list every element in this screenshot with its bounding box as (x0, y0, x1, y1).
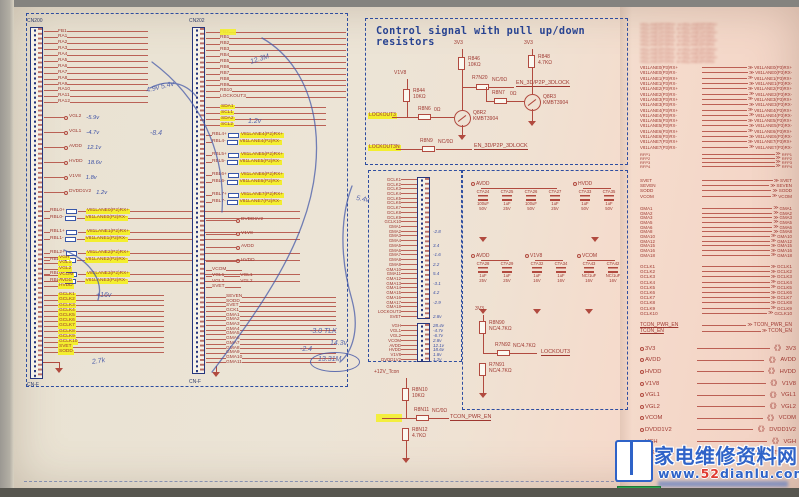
wire (76, 326, 164, 327)
wire (396, 149, 422, 150)
wire (76, 311, 164, 312)
lane-dest-label: V81LANE1(P2)RX- (85, 237, 128, 242)
wire (206, 97, 220, 98)
wire (67, 43, 148, 44)
lane-offpage-list: V81LANE0(P3)RX+ ≫ V81LANE0(P3)RX+ V81LAN… (640, 65, 792, 150)
wire (234, 113, 326, 114)
net-node-icon (236, 259, 240, 263)
net-row: SVET (206, 285, 346, 291)
handwritten-voltage: 12.1v (87, 145, 101, 151)
capacitor: CTA32 1uF 16V (525, 261, 549, 283)
wire (702, 67, 747, 68)
offpage-net-label: AVDD (780, 357, 796, 363)
net-row: SCL2 (206, 122, 326, 128)
net-label: HVDD (58, 284, 74, 289)
watermark-site-name: 家电维修资料网 (654, 440, 798, 469)
net-node-icon (64, 131, 68, 135)
wire (401, 202, 417, 203)
wire (229, 38, 346, 39)
cap-voltage: 16V (557, 279, 564, 284)
wire (401, 264, 417, 265)
cap-voltage: 25V (551, 207, 558, 212)
diff-pair-group: RBL4+ V81LANE4(P2)RX+ RBL4- V81LANE4(P2)… (206, 132, 348, 152)
cap-ref: CTA42 (607, 261, 620, 266)
wire (532, 109, 533, 121)
cn202-singles: DVDD1V2 V1V8 AVDD HVDD (206, 214, 346, 268)
offpage-net-label: 3V3 (786, 346, 796, 352)
filter-component-icon (66, 209, 77, 214)
cap-group-avdd-2: AVDD CTA28 1uF 25V CTA29 1uF 25V (471, 253, 519, 283)
net-label: VGL2 (645, 404, 697, 410)
capacitor: CTA25 1uF 25V (495, 189, 519, 211)
lane-dest-label: V81LANE6(P2)RX- (239, 180, 282, 185)
wire (401, 287, 417, 288)
connector-cn202 (192, 27, 205, 374)
resistor-r8n6-ref: R8N6 (418, 107, 431, 113)
net-label: AVDD (645, 357, 697, 363)
wire (206, 339, 226, 340)
offpage-net-label: V81LANE4(P3)RX- (755, 113, 792, 118)
resistor-r7n20-val: NC/0Ω (492, 78, 507, 84)
wire (401, 340, 417, 341)
wire (44, 90, 58, 91)
offpage-arrow-icon: ≫ (772, 193, 777, 199)
net-label: V81LANE0(P3)RX- (640, 70, 702, 75)
wire (702, 227, 772, 228)
net-label: RFP4 (640, 164, 702, 169)
lane-dest-label: V81LANE4(P2)RX- (239, 140, 282, 145)
cn200-ground-icon (55, 368, 63, 373)
transistor-q8r2-label: Q8R2 KMBT3904 (473, 111, 498, 123)
offpage-row: AVDD 《》 AVDD (640, 355, 796, 367)
filter-component-icon (228, 153, 239, 158)
wire (44, 177, 64, 178)
wire (702, 110, 747, 111)
pair-src-label: RBL4+ (212, 133, 227, 138)
net-node-icon (64, 146, 68, 150)
wire (206, 38, 220, 39)
wire (697, 371, 764, 372)
diff-pair-group: RBL6+ V81LANE6(P2)RX+ RBL6- V81LANE6(P2)… (206, 172, 348, 192)
resistor-r7n20-ref: R7N20 (472, 76, 488, 82)
net-label: V81LANE1(P3)RX- (640, 81, 702, 86)
net-label: AVDD (241, 245, 254, 250)
wire (44, 281, 58, 282)
resistor-r8n7 (494, 98, 507, 104)
wire (206, 302, 226, 303)
wire (702, 83, 748, 84)
watermark: 家电维修资料网 www.52dianlu.com (612, 438, 799, 488)
wire (44, 55, 58, 56)
wire (702, 266, 770, 267)
filter-component-icon (65, 237, 76, 242)
wire (697, 429, 753, 430)
capacitor: CTA43 NC/1uF 16V (577, 261, 601, 283)
cap-voltage: 16V (533, 279, 540, 284)
offpage-double-icon: 《》 (766, 403, 780, 410)
wire (239, 306, 336, 307)
offpage-net-label: V81LANE5(P3)RX- (755, 123, 792, 128)
wire (44, 37, 58, 38)
cap-ref: CTA28 (477, 261, 490, 266)
wire (206, 56, 220, 57)
wire (702, 276, 770, 277)
wire (401, 179, 417, 180)
net-row: HVDD (206, 255, 346, 269)
wire (702, 208, 772, 209)
resistor-r8n6 (418, 114, 431, 120)
wire (401, 330, 417, 331)
wire (206, 247, 236, 248)
q8r2-ground-icon (458, 135, 466, 140)
wire (44, 102, 58, 103)
cap-voltage: 25V (479, 279, 486, 284)
net-label: V81LANE7(P3)RX- (640, 145, 702, 150)
wire (401, 316, 417, 317)
net-label: V81LANE5(P3)RX- (640, 123, 702, 128)
handwritten-voltage: 1.8v (86, 175, 97, 181)
wire (702, 120, 747, 121)
sheet-bottom-dashed-line (24, 481, 624, 482)
net-node-icon (640, 358, 644, 362)
net-label: SODD (58, 350, 74, 355)
resistor-r848-label: R848 4.7KΩ (538, 55, 552, 67)
wire (76, 316, 164, 317)
offpage-net-label: V81LANE2(P3)RX- (755, 92, 792, 97)
wire (462, 87, 463, 110)
wire (206, 330, 226, 331)
offpage-double-icon: 《》 (771, 345, 785, 352)
pair-src-label: RBL6- (212, 180, 226, 185)
net-label: VGL1 (69, 130, 81, 135)
net-label: TCON_EN (640, 328, 702, 334)
wire (206, 344, 226, 345)
watermark-book-icon (615, 440, 653, 482)
wire (702, 325, 746, 326)
offpage-row: VGL1 《》 VGL1 (640, 389, 796, 401)
wire (240, 325, 336, 326)
wire (401, 188, 417, 189)
wire (44, 347, 58, 348)
cn202-yellow-stack: SDA1 SCL1 SDA2 SCL2 (206, 104, 326, 128)
net-label: V81LANE5(P3)RX+ (640, 118, 702, 123)
watermark-url-highlight: 52 (701, 466, 720, 481)
net-label: DVDD1V2 (241, 218, 263, 223)
offpage-net-label: GCLK10 (774, 311, 792, 316)
wire (76, 331, 164, 332)
wire (429, 418, 449, 419)
wire (486, 87, 487, 101)
net-label: V81LANE6(P3)RX- (640, 134, 702, 139)
wire (78, 253, 86, 254)
photo-edge-left (0, 0, 14, 497)
wire (401, 306, 417, 307)
pair-src-label: RBL5- (212, 160, 226, 165)
cap-ref: CTA33 (579, 189, 592, 194)
wire (206, 62, 220, 63)
wire (206, 113, 220, 114)
wire (401, 359, 417, 360)
cap-ref: CTA26 (525, 189, 538, 194)
resistor-r8n7-val: 0Ω (510, 92, 517, 98)
wire (77, 218, 85, 219)
net-node-icon (236, 232, 240, 236)
net-label: GCLK10 (640, 311, 702, 316)
handwritten-voltage: -1.6 (433, 252, 441, 257)
wire (229, 44, 346, 45)
ctrl-offpage-list: SVET ≫ SVET SEVEN ≫ SEVEN SODD ≫ SODD VC… (640, 178, 792, 199)
wire (78, 232, 86, 233)
wire (70, 90, 148, 91)
wire (78, 211, 86, 212)
cap-group-net: AVDD (476, 253, 490, 259)
ground-icon (585, 309, 593, 314)
wire (206, 320, 226, 321)
resistor-r8n10-label: R8N10 10KΩ (412, 388, 428, 400)
offpage-net-label: V81LANE6(P3)RX+ (754, 129, 792, 134)
lane-dest-label: V81LANE0(P2)RX- (85, 216, 128, 221)
tcon-connector-box: GCLK1 GCLK2 GCLK3 GCLK4 GCLK5 GCLK6 (368, 170, 462, 362)
lane-dest-label: V81LANE1(P2)RX+ (86, 230, 130, 235)
cap-voltage: 16V (609, 279, 616, 284)
offpage-net-label: V81LANE3(P3)RX- (755, 102, 792, 107)
offpage-row: 3V3 《》 3V3 (640, 343, 796, 355)
offpage-net-label: HVDD (780, 369, 796, 375)
cap-ref: CTA24 (477, 189, 490, 194)
cn202-vcom-group: VCOM VGL1 VGL1 VGL2 VGL2 SVET (206, 268, 346, 290)
control-signal-box: Control signal with pull up/down resisto… (365, 18, 628, 165)
wire (44, 311, 58, 312)
wire (702, 287, 770, 288)
wire (44, 263, 58, 264)
watermark-url: www.52dianlu.com (658, 466, 799, 481)
wire (44, 300, 58, 301)
wire (229, 50, 346, 51)
cap-group-v1v8: V1V8 CTA32 1uF 16V CTA34 1uF 16V (525, 253, 573, 283)
wire (702, 250, 770, 251)
filter-component-icon (228, 173, 239, 178)
resistor-r844 (403, 89, 410, 102)
offpage-net-label: DVDD1V2 (769, 427, 796, 433)
wire (702, 302, 770, 303)
watermark-url-prefix: www. (658, 466, 701, 481)
offpage-row: GCLK10 ≫ GCLK10 (640, 311, 792, 316)
cn202-label: CN202 (189, 18, 205, 24)
net-label: V81LANE1(P3)RX+ (640, 76, 702, 81)
wire (44, 331, 58, 332)
capacitor: CTA27 1uF 25V (543, 189, 567, 211)
net-row: DVDD1V2 (206, 214, 346, 228)
tcon-strip1-rows: GCLK1 GCLK2 GCLK3 GCLK4 GCLK5 GCLK6 (371, 177, 461, 319)
wire (702, 236, 770, 237)
wire (702, 131, 747, 132)
wire (401, 193, 417, 194)
tcon-power-circuit: +12V_Tcon R8N10 10KΩ R8N11 NC/0Ω TCON_PW… (372, 366, 512, 478)
wire (44, 295, 58, 296)
lane-dest-label: V81LANE5(P2)RX+ (240, 153, 284, 158)
tcon-offpage-list: TCON_PWR_EN ≫ TCON_PWR_EN TCON_EN ≫ TCON… (640, 322, 792, 334)
wire (235, 119, 326, 120)
wire (224, 281, 240, 282)
wire (229, 80, 346, 81)
wire (206, 91, 220, 92)
handwritten-voltage: -5.9v (86, 115, 99, 121)
wire (206, 297, 226, 298)
cn202-diff-groups: RBL4+ V81LANE4(P2)RX+ RBL4- V81LANE4(P2)… (206, 132, 348, 212)
resistor-r8n10 (402, 388, 409, 401)
right-offpage-column: V81LANE0(P3)RX+ ≫V81LANE0(P3)RX+V81LANE0… (634, 14, 796, 484)
cap-ref: CTA43 (583, 261, 596, 266)
filter-component-icon (227, 160, 238, 165)
net-label: SDA1 (220, 105, 235, 110)
offpage-double-icon: 《》 (765, 357, 779, 364)
net-3v3-pullup: 3V3 (475, 307, 484, 313)
pair-src-label: RBL5+ (212, 153, 227, 158)
wire (76, 321, 164, 322)
wire (206, 348, 226, 349)
handwritten-circle (310, 352, 360, 372)
net-label: VCOM (645, 415, 697, 421)
net-row: V1V8 (206, 228, 346, 242)
wire (483, 353, 537, 354)
net-v1v8: V1V8 (394, 71, 406, 77)
wire (240, 320, 336, 321)
net-label: SCL2 (220, 123, 234, 128)
wire (401, 254, 417, 255)
handwritten-voltage: 5.4 (433, 271, 439, 276)
net-label: GMA18 (640, 253, 702, 258)
wire (702, 125, 748, 126)
wire (76, 337, 164, 338)
wire (697, 383, 766, 384)
diff-pair-group: RBL5+ V81LANE5(P2)RX+ RBL5- V81LANE5(P2)… (206, 152, 348, 172)
wire (77, 239, 85, 240)
wire (702, 231, 772, 232)
wire (702, 99, 747, 100)
wire (462, 125, 463, 135)
wire (401, 221, 417, 222)
handwritten-voltage: 1.2v (433, 357, 442, 362)
wire (436, 149, 472, 150)
transistor-q8r3-label: Q8R3 KMBT3904 (543, 95, 568, 107)
capacitor: CTA29 1uF 25V (495, 261, 519, 283)
wire (406, 441, 407, 458)
net-label: RA6 (58, 65, 67, 70)
wire (44, 147, 64, 148)
net-node-icon (525, 254, 529, 258)
pair-src-label: RBL1+ (50, 230, 65, 235)
wire (702, 241, 770, 242)
net-node-icon (640, 370, 644, 374)
wire (697, 406, 765, 407)
wire (702, 158, 775, 159)
capacitor: CTA35 1uF 50V (597, 189, 621, 211)
offpage-net-label: VCOM (779, 415, 796, 421)
wire (67, 84, 148, 85)
net-label: V81LANE2(P3)RX- (640, 92, 702, 97)
wire (401, 207, 417, 208)
capacitor: CTA24 100uF 50V (471, 189, 495, 211)
cap-group-hvdd: HVDD CTA33 1uF 50V CTA35 1uF 50V (573, 181, 621, 211)
watermark-url-suffix: dianlu.com (720, 466, 799, 481)
wire (702, 154, 775, 155)
cn200-yellow-stack-2: GCLK1 GCLK2 GCLK3 GCLK4 GCLK5 GCLK6 GCLK… (44, 293, 164, 355)
wire (240, 334, 336, 335)
net-node-icon (471, 254, 475, 258)
handwritten-voltage: -2.8 (433, 229, 441, 234)
resistor-r8n9-ref: R8N9 (420, 139, 433, 145)
net-node-icon (64, 116, 68, 120)
wire (702, 136, 748, 137)
wire (206, 80, 220, 81)
lane-dest-label: V81LANE7(P2)RX+ (240, 193, 284, 198)
offpage-net-label: V81LANE0(P3)RX- (755, 70, 792, 75)
wire (67, 73, 148, 74)
net-label: DVDD1V2 (645, 427, 697, 433)
offpage-row: DVDD1V2 《》 DVDD1V2 (640, 424, 796, 436)
wire (206, 125, 220, 126)
gma-offpage-list: GMA1 ≫ GMA1 GMA2 ≫ GMA2 GMA3 ≫ GMA3 GMA5… (640, 206, 792, 258)
net-label: SDA2 (220, 117, 235, 122)
net-label: DVDD1V2 (69, 190, 91, 195)
wire (44, 352, 58, 353)
wire (401, 245, 417, 246)
blurred-net-row: V81LANE4(P3)RX- ≫V81LANE4(P3)RX- (640, 59, 790, 63)
wire (483, 334, 484, 353)
wire (229, 62, 346, 63)
net-node-icon (640, 347, 644, 351)
wire (240, 330, 336, 331)
cap-voltage: 25V (503, 279, 510, 284)
wire (78, 342, 164, 343)
wire (702, 147, 748, 148)
wire (44, 305, 58, 306)
offpage-arrow-icon: ≫ (771, 252, 776, 258)
cap-group-vcom: VCOM CTA43 NC/1uF 16V CTA42 NC/1uF 16V (577, 253, 625, 283)
net-3v3-b: 3V3 (524, 41, 533, 47)
lane-dest-label: V81LANE4(P2)RX+ (240, 133, 284, 138)
dest-label: VGL2 (240, 280, 252, 285)
net-tcon-pwr-en: TCON_PWR_EN (450, 414, 491, 421)
cap-voltage: 25V (503, 207, 510, 212)
capacitor: CTA28 1uF 25V (471, 261, 495, 283)
wire (401, 184, 417, 185)
cap-group-avdd-1: AVDD CTA24 100uF 50V CTA25 1uF 25V CTA26… (471, 181, 567, 211)
net-label: VCOM (640, 194, 702, 199)
wire (401, 345, 417, 346)
lane-dest-label: V81LANE5(P2)RX- (239, 160, 282, 165)
net-node-icon (640, 382, 644, 386)
wire (44, 96, 58, 97)
offpage-row: RFP4 ≫ RFP4 (640, 164, 792, 168)
net-node-icon (573, 182, 577, 186)
resistor-r8n11 (416, 415, 429, 421)
handwritten-voltage: -4.7v (86, 130, 99, 136)
wire (702, 217, 772, 218)
rfp-offpage-list: RFP1 ≫ RFP1 RFP2 ≫ RFP2 RFP3 ≫ RFP3 RFP4… (640, 152, 792, 168)
cap-voltage: 50V (605, 207, 612, 212)
wire (44, 31, 58, 32)
wire (702, 94, 748, 95)
wire (401, 292, 417, 293)
net-node-icon (640, 428, 644, 432)
wire (401, 302, 417, 303)
net-label: VCOM (58, 273, 74, 278)
offpage-double-icon: 《》 (765, 368, 779, 375)
handwritten-voltage: 2.2 (433, 262, 439, 267)
net-row: HVDD (44, 284, 94, 290)
wire (44, 43, 58, 44)
